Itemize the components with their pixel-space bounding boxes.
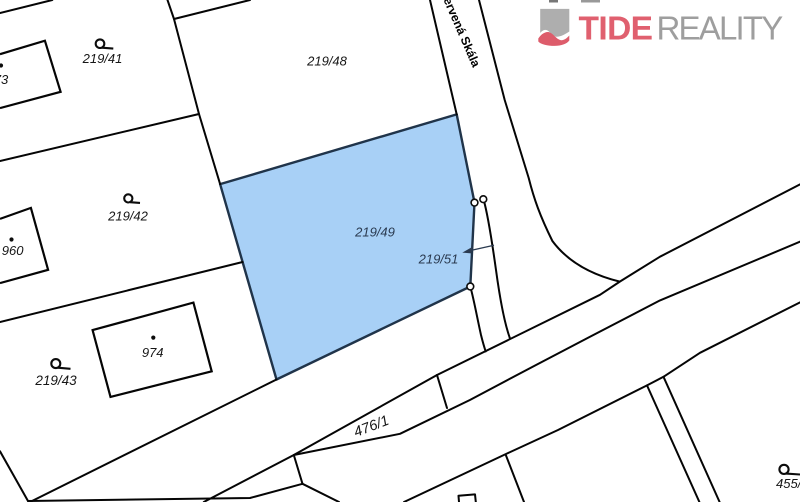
svg-text:974: 974 [142,345,164,360]
svg-text:REALITY: REALITY [657,9,784,46]
svg-text:960: 960 [2,243,24,258]
svg-text:219/48: 219/48 [306,54,348,69]
svg-text:73: 73 [0,72,9,87]
svg-text:TIDE: TIDE [579,10,653,47]
svg-text:219/42: 219/42 [107,208,149,223]
svg-text:219/43: 219/43 [34,373,77,388]
svg-text:219/49: 219/49 [354,225,395,240]
svg-text:219/51: 219/51 [418,251,459,266]
svg-text:455/4: 455/4 [776,476,800,491]
svg-text:219/41: 219/41 [82,51,123,66]
